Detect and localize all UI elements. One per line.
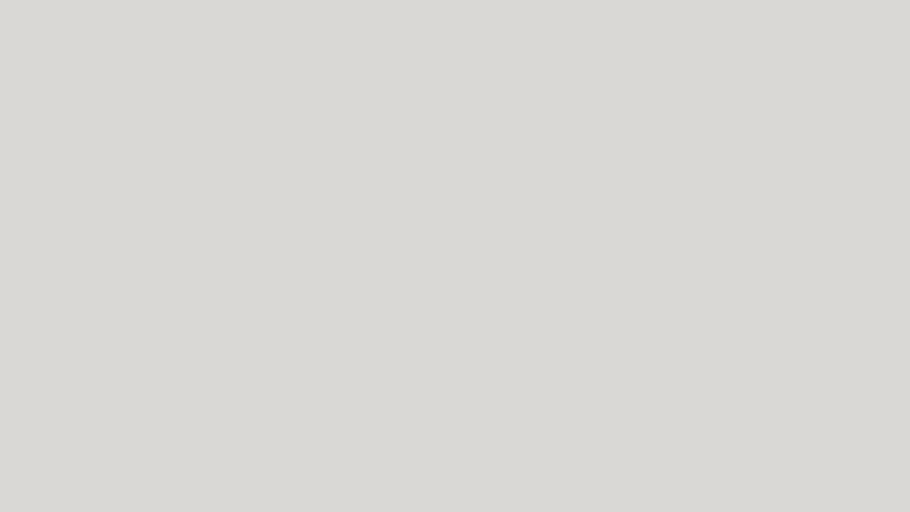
caps-layer — [0, 0, 910, 512]
sketchup-viewport[interactable] — [0, 0, 910, 512]
